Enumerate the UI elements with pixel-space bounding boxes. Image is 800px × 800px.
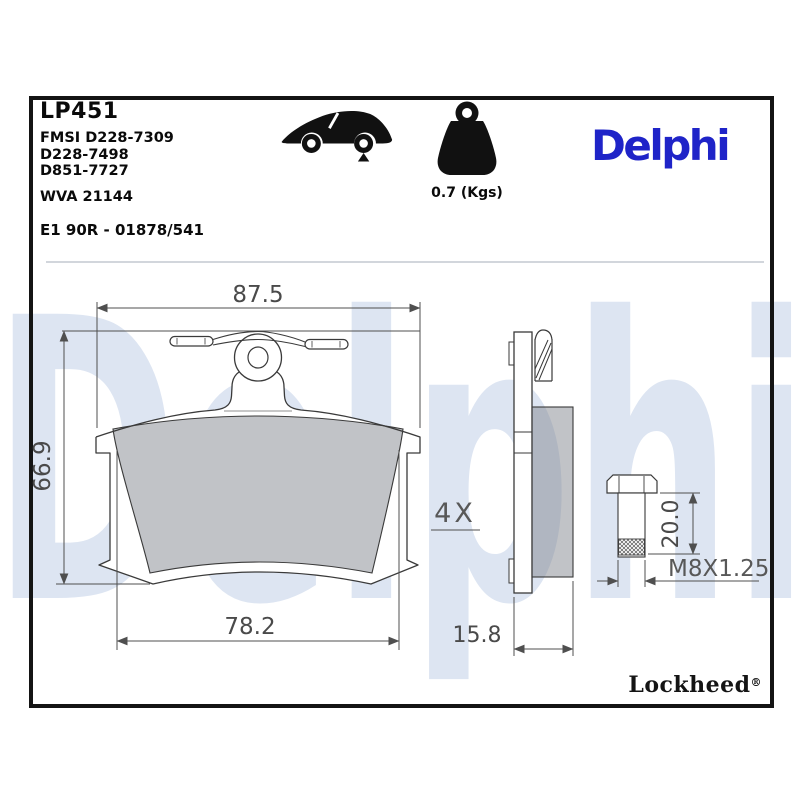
rear-axle-marker bbox=[358, 153, 369, 162]
fmsi-line-2: D228-7498 bbox=[40, 147, 174, 164]
clip-arm-left bbox=[170, 337, 213, 347]
registered-trademark-symbol: ® bbox=[751, 676, 763, 689]
part-number: LP451 bbox=[40, 99, 119, 124]
weight-value-label: 0.7 (Kgs) bbox=[413, 185, 521, 201]
weight-body bbox=[438, 121, 497, 175]
dim-thickness-label: 15.8 bbox=[453, 623, 502, 648]
friction-material bbox=[113, 416, 403, 573]
lockheed-logo: Lockheed® bbox=[628, 672, 762, 698]
clip-arm-right bbox=[305, 340, 348, 350]
wva-number: WVA 21144 bbox=[40, 189, 133, 205]
dim-thread-label: M8X1.25 bbox=[668, 556, 769, 582]
bolt-head bbox=[607, 475, 657, 493]
side-tab-top bbox=[509, 342, 514, 365]
fmsi-reference-block: FMSI D228-7309 D228-7498 D851-7727 bbox=[40, 130, 174, 180]
dim-width-label: 87.5 bbox=[232, 282, 283, 308]
datasheet-page: Delphi bbox=[0, 0, 800, 800]
dim-height-label: 66.9 bbox=[30, 440, 56, 491]
lockheed-logo-text: Lockheed bbox=[628, 672, 750, 698]
dim-pad-width-label: 78.2 bbox=[224, 614, 275, 640]
car-front-hub bbox=[307, 139, 316, 148]
fmsi-line-1: FMSI D228-7309 bbox=[40, 130, 174, 147]
fmsi-line-3: D851-7727 bbox=[40, 163, 174, 180]
side-backplate bbox=[514, 332, 532, 593]
side-friction-material bbox=[532, 407, 573, 577]
ece-approval-number: E1 90R - 01878/541 bbox=[40, 221, 204, 239]
car-rear-axle-icon bbox=[280, 103, 394, 163]
car-rear-hub bbox=[359, 139, 368, 148]
dim-bolt-length-label: 20.0 bbox=[659, 500, 684, 549]
quantity-label: 4X bbox=[434, 498, 476, 529]
delphi-logo: Delphi bbox=[591, 121, 728, 170]
boss-hole bbox=[248, 347, 268, 368]
weight-handle-hole bbox=[462, 108, 472, 118]
bolt-knurl-band bbox=[619, 539, 645, 555]
side-tab-bottom bbox=[509, 559, 514, 583]
weight-kg-icon bbox=[427, 100, 507, 184]
